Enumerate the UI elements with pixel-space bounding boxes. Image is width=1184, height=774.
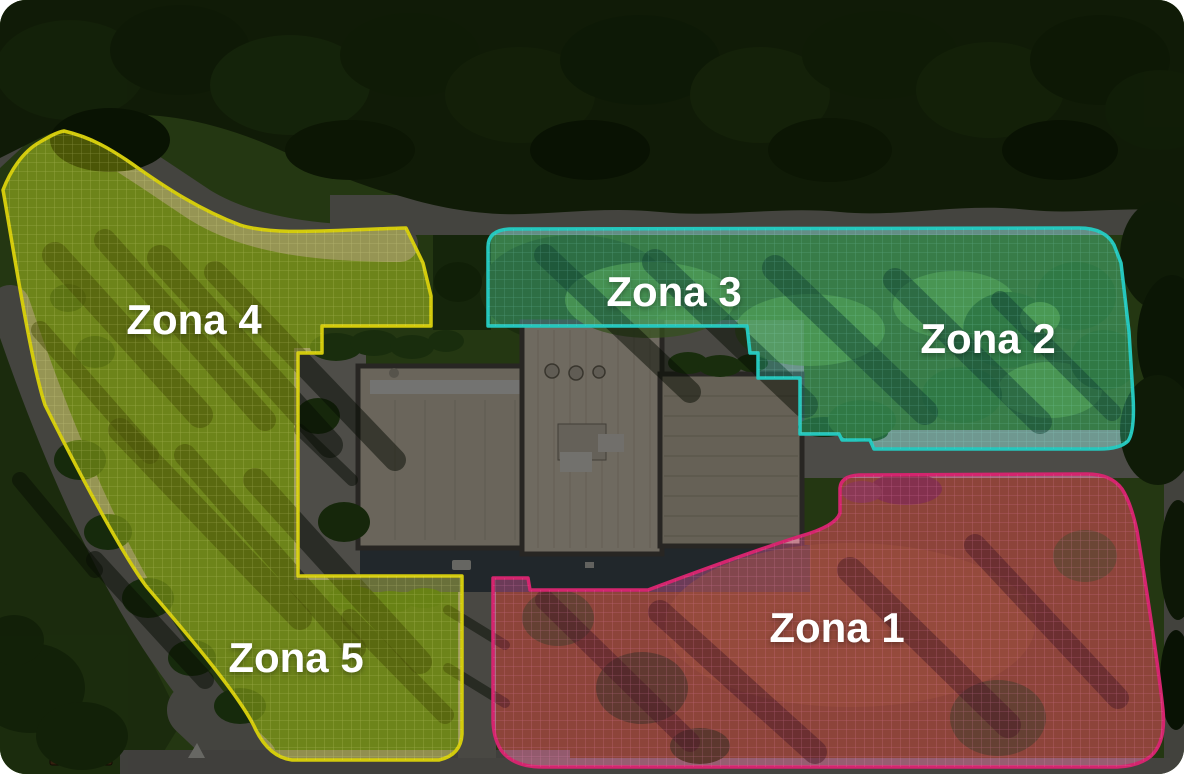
- zone-label-zona-1[interactable]: Zona 1: [769, 604, 904, 652]
- zone-label-zona-2[interactable]: Zona 2: [920, 315, 1055, 363]
- zone-label-zona-4[interactable]: Zona 4: [126, 296, 261, 344]
- zone-label-zona-3[interactable]: Zona 3: [606, 268, 741, 316]
- zone-label-zona-5[interactable]: Zona 5: [228, 634, 363, 682]
- zone-map-card: Zona 1 Zona 2 Zona 3 Zona 4 Zona 5: [0, 0, 1184, 774]
- aerial-map: [0, 0, 1184, 774]
